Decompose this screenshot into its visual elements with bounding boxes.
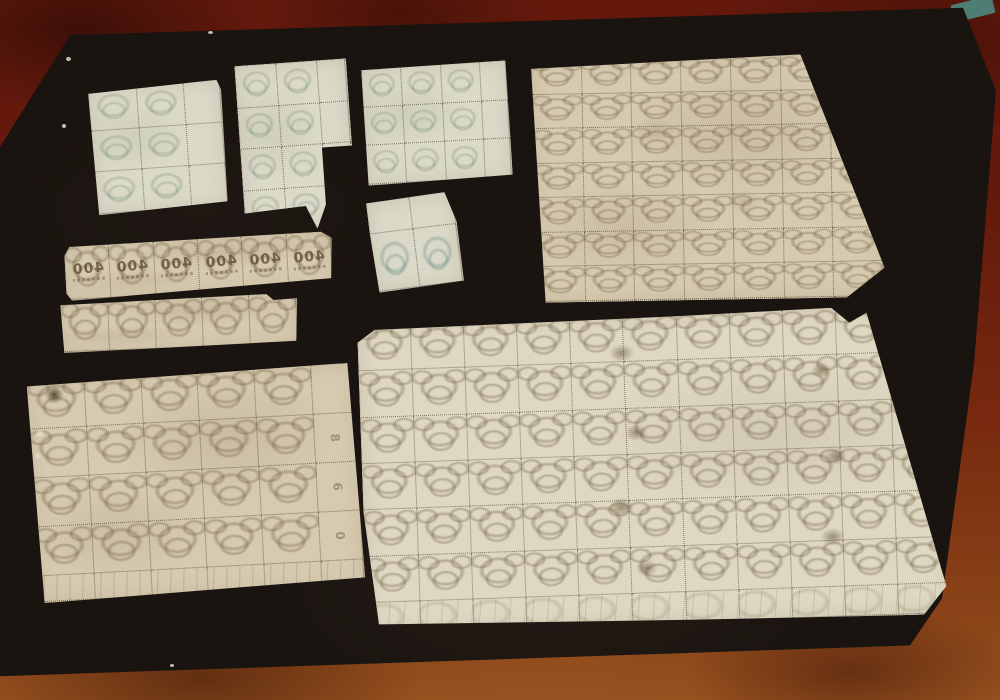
stamp-sheet-bottom-left: 860 [26, 363, 365, 604]
stamp-cell [736, 496, 791, 544]
stamp-cell [441, 63, 482, 104]
stamp-cell [681, 57, 731, 92]
stamp-cell [843, 538, 898, 586]
stamp-cell [520, 410, 575, 458]
stamp-cell [467, 412, 522, 460]
stamp-cell [202, 296, 251, 348]
stamp-cell [443, 101, 484, 142]
stamp-cell [205, 516, 264, 568]
stamp-cell [364, 509, 419, 557]
stamp-cell [146, 470, 205, 522]
stamp-cell [469, 459, 524, 507]
stamp-cell [578, 548, 633, 596]
stamp-cell [466, 366, 521, 414]
stamp-cell [364, 105, 405, 146]
stamp-cell [631, 546, 686, 594]
stamp-cell [257, 415, 316, 467]
sheet-selvage-margin [898, 583, 952, 615]
sheet-selvage-margin [184, 81, 223, 125]
stamp-cell [732, 403, 787, 451]
stamp-cell: 400 [153, 239, 200, 295]
stamp-cell [472, 551, 527, 599]
stamp-cell [470, 505, 525, 553]
stamp-cell [628, 453, 683, 501]
stamp-cell [411, 322, 466, 370]
sheet-selvage-margin [94, 570, 152, 599]
stamp-cell [585, 266, 635, 301]
margin-plate-number: 6 [331, 482, 345, 491]
stamp-cell [734, 263, 784, 298]
board-edge-nick [170, 664, 174, 667]
stamp-cell [136, 83, 186, 128]
stamp-cell [84, 375, 143, 427]
stamp-cell [366, 144, 407, 185]
sheet-selvage-margin [320, 101, 351, 144]
sheet-selvage-margin [482, 100, 510, 140]
stamp-cell [445, 140, 486, 181]
stamp-cell [142, 166, 192, 211]
sheet-selvage-margin [484, 139, 512, 179]
stamp-cell [782, 124, 832, 159]
stamp-cell [583, 162, 633, 197]
sheet-selvage-margin [367, 197, 414, 234]
stamp-cell [782, 159, 832, 194]
overprint-400-mirrored: 400 [248, 251, 282, 273]
sheet-selvage-margin [686, 590, 740, 622]
stamp-cell [584, 197, 634, 232]
stamp-cell [262, 513, 321, 565]
sheet-selvage-margin [845, 585, 899, 617]
stamp-cell [583, 127, 633, 162]
stamp-cell [401, 65, 442, 106]
stamp-cell [678, 359, 733, 407]
sheet-selvage-margin [189, 164, 228, 208]
stamp-cell [783, 228, 833, 263]
margin-plate-number: 8 [328, 433, 342, 442]
board-edge-nick [66, 57, 71, 61]
stamp-cell [734, 229, 784, 264]
stamp-cell [139, 125, 189, 170]
stamp-cell [582, 93, 632, 128]
stamp-cell [789, 494, 844, 542]
stamp-cell [729, 310, 784, 358]
sheet-selvage-margin [739, 588, 793, 620]
stamp-cell [155, 297, 204, 349]
stamp-cell [259, 464, 318, 516]
stamp-cell [634, 230, 684, 265]
stamp-cell [685, 264, 735, 299]
stamp-cell [417, 507, 472, 555]
sheet-selvage-margin [792, 586, 846, 618]
stamp-cell [87, 424, 146, 476]
stamp-sheet-bottom-right [357, 304, 953, 634]
stamp-cell [61, 300, 110, 352]
stamp-cell [840, 446, 895, 494]
stamp-cell [235, 64, 279, 108]
stamp-cell [403, 103, 444, 144]
stamp-cell [630, 499, 685, 547]
stamp-cell [464, 320, 519, 368]
overprint-400-mirrored: 400 [159, 256, 193, 278]
stamp-cell [534, 163, 584, 198]
stamp-cell [625, 360, 680, 408]
margin-plate-number: 0 [333, 531, 347, 540]
sheet-selvage-margin [317, 59, 348, 102]
stamp-cell [732, 125, 782, 160]
sheet-selvage-margin: 8 [314, 413, 359, 464]
stamp-cell [249, 294, 298, 346]
board-edge-nick [208, 31, 213, 34]
stamp-cell [30, 427, 89, 479]
stamp-cell [575, 455, 630, 503]
stamp-cell [577, 501, 632, 549]
stamp-cell [419, 553, 474, 601]
stamp-cell [413, 224, 463, 287]
stamp-cell [522, 457, 577, 505]
stamp-cell [684, 229, 734, 264]
sheet-selvage-margin: 0 [319, 510, 364, 561]
stamp-cell [108, 299, 157, 351]
photo-of-stamp-sheets-on-black-board: 400400400400400400 860 [0, 0, 1000, 700]
stamp-cell [683, 160, 733, 195]
stamp-cell [89, 473, 148, 525]
stamp-cell [533, 128, 583, 163]
stamp-cell [519, 364, 574, 412]
board-edge-nick [62, 124, 66, 128]
stamp-cell [279, 103, 323, 147]
sheet-selvage-margin [480, 61, 508, 101]
stamp-cell [92, 522, 151, 574]
stamp-cell [734, 449, 789, 497]
stamp-cell [572, 362, 627, 410]
stamp-cell [363, 462, 418, 510]
stamp-cell [533, 94, 583, 129]
stamp-cell [203, 467, 262, 519]
stamp-cell [359, 370, 414, 418]
stamp-cell [633, 161, 683, 196]
stamp-cell [33, 476, 92, 528]
stamp-cell [682, 91, 732, 126]
stamp-cell: 400 [65, 244, 112, 300]
stamp-cell [634, 196, 684, 231]
stamp-cell [361, 416, 416, 464]
stamp-cell [839, 399, 894, 447]
sheet-selvage-margin: 6 [316, 461, 361, 512]
stamp-cell [731, 357, 786, 405]
stamp-cell [254, 366, 313, 418]
stamp-cell [790, 540, 845, 588]
stamp-cell [683, 498, 738, 546]
stamp-cell [633, 127, 683, 162]
stamp-cell [525, 549, 580, 597]
stamp-block-3x3 [361, 60, 513, 185]
stamp-cell [89, 86, 139, 131]
stamp-cell [35, 525, 94, 577]
overprint-400-mirrored: 400 [115, 258, 149, 280]
stamp-cell [733, 159, 783, 194]
stamp-cell [534, 197, 584, 232]
stamp-cell [141, 372, 200, 424]
stamp-cell [784, 355, 839, 403]
stamp-cell [842, 492, 897, 540]
stamp-cell [784, 262, 834, 297]
stamp-cell [733, 194, 783, 229]
stamp-cell [573, 409, 628, 457]
stamp-cell [787, 448, 842, 496]
stamp-cell [623, 314, 678, 362]
stamp-cell [276, 61, 320, 105]
stamp-cell [414, 414, 469, 462]
stamp-cell [785, 401, 840, 449]
stamp-cell [682, 126, 732, 161]
sheet-selvage-margin [186, 122, 225, 166]
stamp-cell [635, 265, 685, 300]
stamp-cell [679, 405, 734, 453]
stamp-cell: 400 [198, 237, 245, 293]
stamp-cell [570, 316, 625, 364]
stamp-cell: 400 [242, 234, 289, 290]
stamp-cell [684, 544, 739, 592]
stamp-cell: 400 [109, 241, 156, 297]
sheet-selvage-margin [633, 592, 687, 624]
stamp-block-top-left [88, 80, 230, 216]
overprint-400-mirrored: 400 [71, 260, 105, 282]
stamp-cell [92, 128, 142, 173]
stamp-cell [143, 421, 202, 473]
stamp-cell [737, 542, 792, 590]
stamp-cell [585, 231, 635, 266]
overprint-400-mirrored: 400 [204, 253, 238, 275]
stamp-cell [95, 170, 145, 215]
stamp-cell [517, 318, 572, 366]
sheet-selvage-margin [38, 573, 96, 602]
stamp-pair-with-tab [366, 191, 465, 293]
overprint-400-mirrored: 400 [292, 249, 326, 271]
stamp-cell [782, 309, 837, 357]
stamp-cell [731, 90, 781, 125]
stamp-cell [198, 369, 257, 421]
stamp-cell [362, 67, 403, 108]
stamp-cell [282, 144, 326, 188]
stamp-cell [371, 229, 421, 292]
stamp-cell [412, 368, 467, 416]
stamp-cell [731, 56, 781, 91]
stamp-cell [149, 519, 208, 571]
stamp-cell [681, 451, 736, 499]
stamp-cell [683, 195, 733, 230]
stamp-cell [783, 193, 833, 228]
stamp-cell [238, 106, 282, 150]
stamp-cell [523, 503, 578, 551]
stamp-cell [241, 147, 285, 191]
stamp-cell [632, 92, 682, 127]
stamp-cell [416, 460, 471, 508]
stamp-cell [200, 418, 259, 470]
stamp-cell [676, 312, 731, 360]
stamp-cell [405, 142, 446, 183]
stamp-cell [626, 407, 681, 455]
